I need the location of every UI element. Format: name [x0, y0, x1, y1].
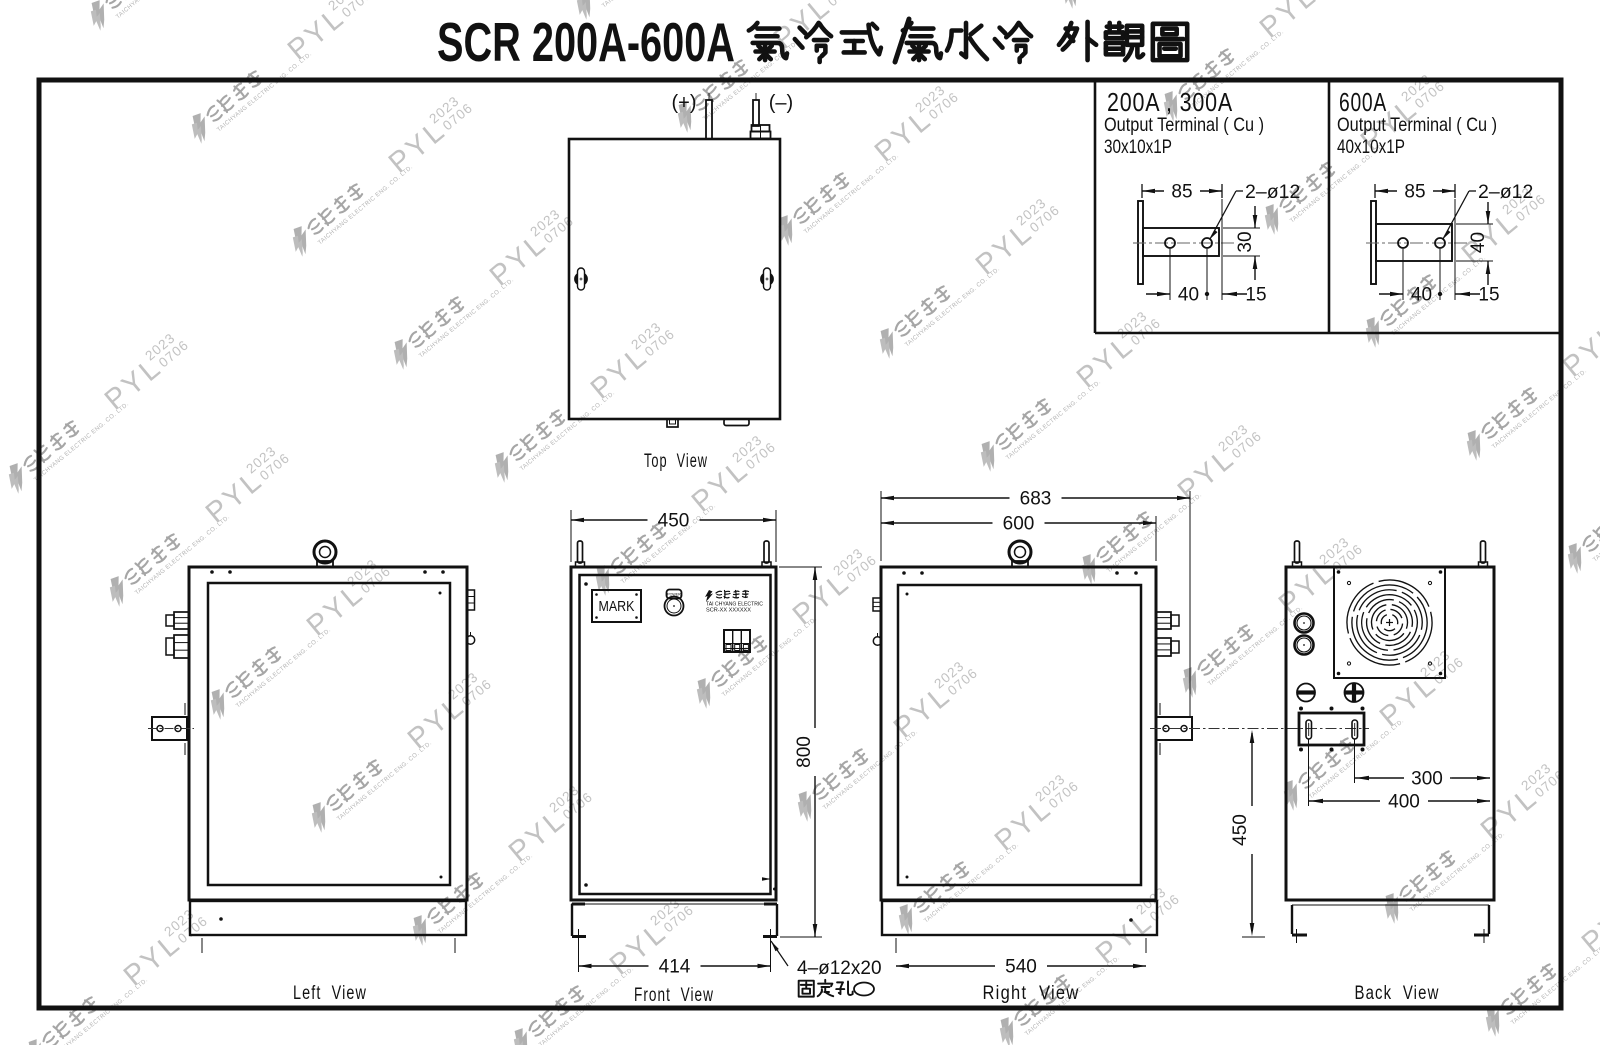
- svg-text:540: 540: [1005, 957, 1037, 978]
- svg-text:600: 600: [1003, 514, 1035, 535]
- svg-text:85: 85: [1171, 182, 1192, 203]
- svg-text:15: 15: [1245, 285, 1266, 306]
- svg-text:800: 800: [794, 736, 815, 768]
- svg-text:414: 414: [659, 957, 691, 978]
- svg-text:200A , 300A: 200A , 300A: [1107, 87, 1233, 117]
- svg-text:MARK: MARK: [599, 599, 635, 615]
- svg-text:40: 40: [1411, 285, 1432, 306]
- svg-text:(–): (–): [769, 92, 793, 114]
- svg-text:Output Terminal ( Cu ): Output Terminal ( Cu ): [1104, 114, 1264, 136]
- svg-text:Output Terminal ( Cu ): Output Terminal ( Cu ): [1337, 114, 1497, 136]
- svg-text:30x10x1P: 30x10x1P: [1104, 136, 1172, 158]
- svg-text:683: 683: [1020, 489, 1052, 510]
- svg-text:600A: 600A: [1339, 87, 1387, 117]
- svg-text:400: 400: [1388, 792, 1420, 813]
- svg-text:Left View: Left View: [293, 982, 367, 1004]
- svg-text:40x10x1P: 40x10x1P: [1337, 136, 1405, 158]
- svg-text:(+): (+): [672, 92, 697, 114]
- svg-text:Back View: Back View: [1355, 982, 1440, 1004]
- svg-text:2–ø12: 2–ø12: [1478, 181, 1533, 203]
- svg-text:2–ø12: 2–ø12: [1245, 181, 1300, 203]
- svg-text:30: 30: [1235, 231, 1256, 252]
- svg-text:450: 450: [1230, 814, 1251, 846]
- svg-text:Top View: Top View: [644, 450, 708, 472]
- svg-text:450: 450: [658, 511, 690, 532]
- svg-text:15: 15: [1478, 285, 1499, 306]
- svg-text:POWER: POWER: [667, 593, 681, 597]
- svg-text:40: 40: [1468, 232, 1489, 253]
- svg-text:Front View: Front View: [634, 984, 714, 1006]
- svg-text:40: 40: [1178, 285, 1199, 306]
- svg-text:300: 300: [1411, 769, 1443, 790]
- svg-text:SCR 200A-600A: SCR 200A-600A: [437, 11, 735, 73]
- svg-text:85: 85: [1404, 182, 1425, 203]
- svg-text:SCR-XX XXXXXX: SCR-XX XXXXXX: [706, 608, 751, 614]
- svg-text:4–ø12x20: 4–ø12x20: [797, 958, 882, 979]
- svg-text:Right View: Right View: [983, 982, 1080, 1004]
